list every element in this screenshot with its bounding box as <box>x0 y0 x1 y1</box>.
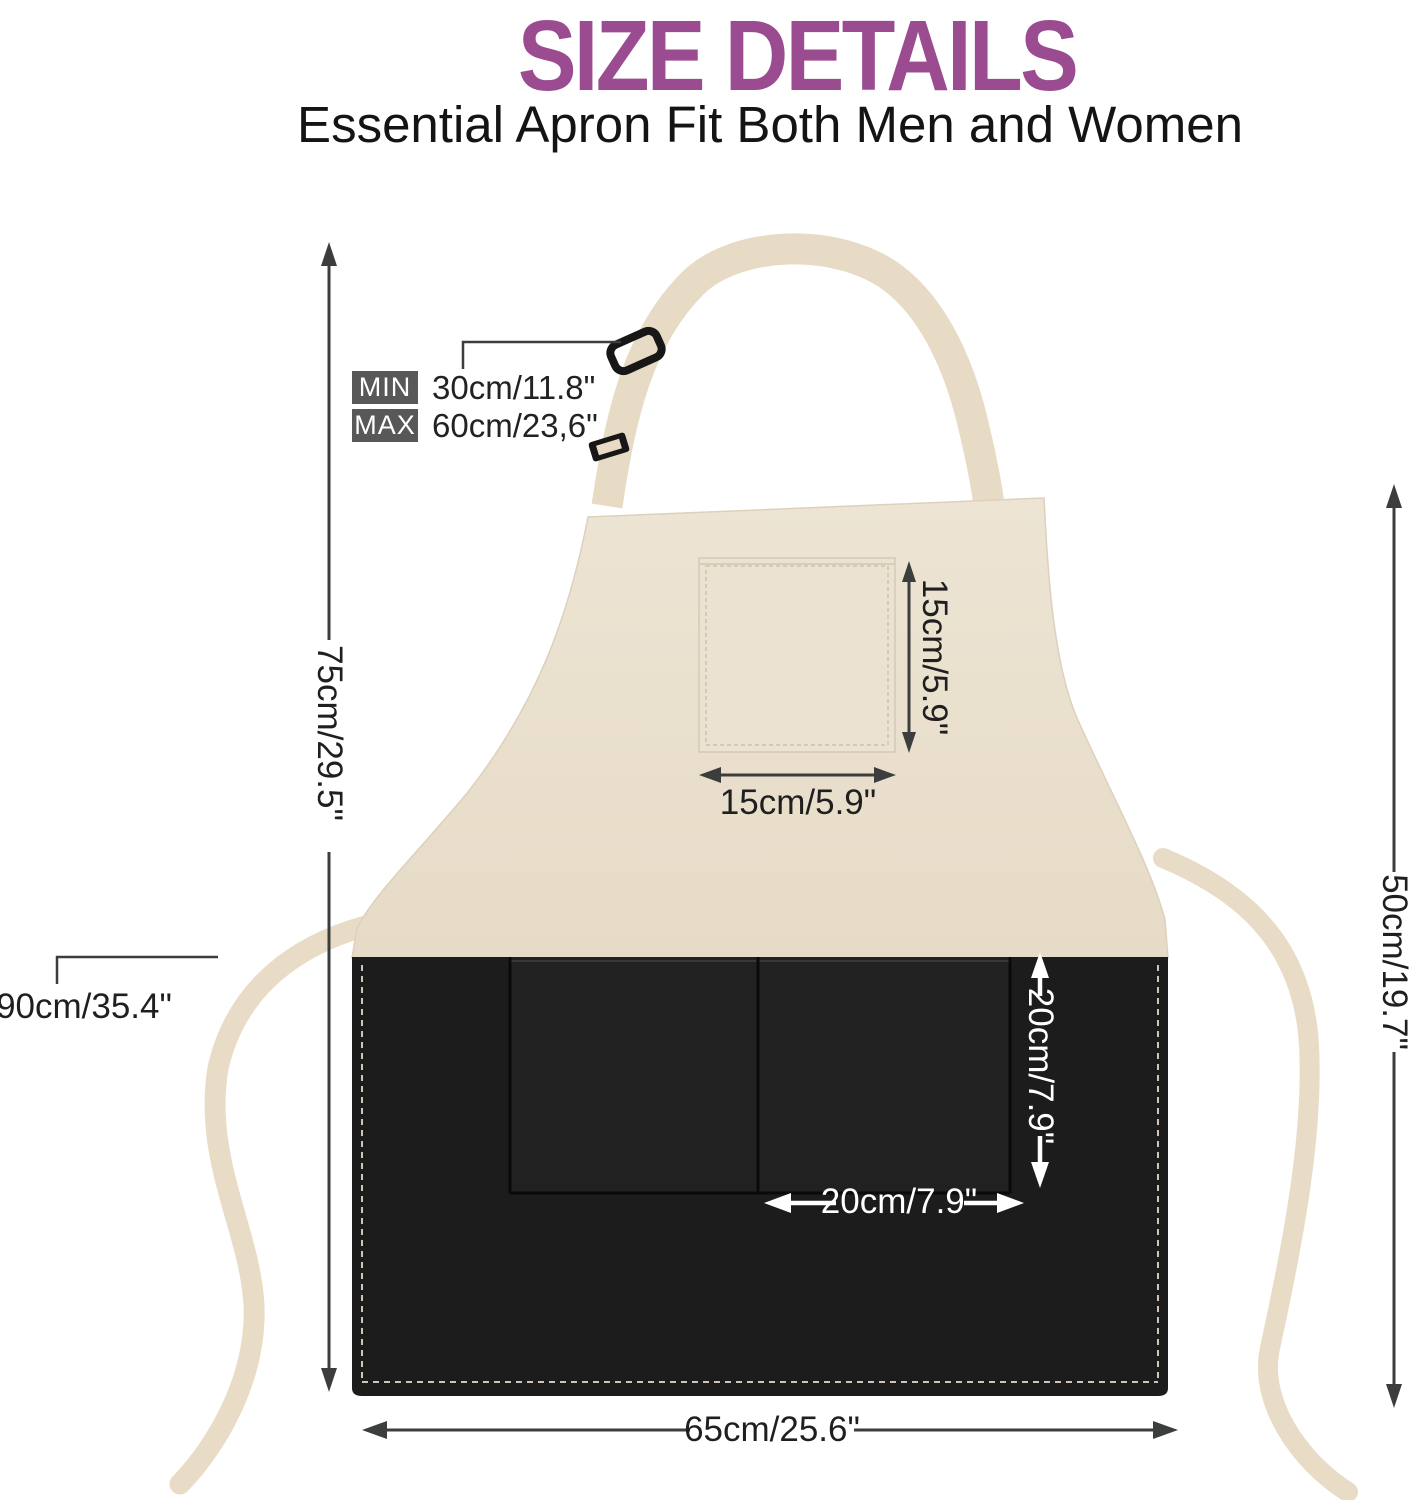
leader-waist-tie <box>57 957 218 984</box>
arrowhead-down-icon <box>1386 1384 1402 1408</box>
front-pocket-strip <box>510 957 1010 1193</box>
neck-strap-max-value: 60cm/23,6" <box>432 409 598 442</box>
chest-pocket-width-label: 15cm/5.9" <box>720 783 876 823</box>
arrowhead-right-icon <box>1153 1421 1178 1439</box>
arrowhead-left-icon <box>362 1421 387 1439</box>
right-waist-tie <box>1163 858 1348 1492</box>
arrowhead-down-icon <box>321 1368 337 1392</box>
size-details-infographic: SIZE DETAILS Essential Apron Fit Both Me… <box>0 0 1412 1500</box>
arrowhead-up-icon <box>1386 484 1402 508</box>
neck-strap-min-value: 30cm/11.8" <box>432 371 595 404</box>
chest-pocket <box>699 558 895 752</box>
leader-neck-strap <box>463 342 621 369</box>
left-waist-tie <box>180 926 366 1484</box>
chest-pocket-height-label: 15cm/5.9" <box>914 579 954 735</box>
front-pocket-width-label: 20cm/7.9" <box>821 1182 977 1222</box>
tie-length-label: 90cm/35.4" <box>0 987 172 1027</box>
bottom-width-label: 65cm/25.6" <box>684 1410 860 1450</box>
side-height-label: 50cm/19.7" <box>1374 874 1412 1050</box>
arrowhead-up-icon <box>321 242 337 266</box>
front-pocket-height-label: 20cm/7.9" <box>1020 988 1060 1144</box>
max-badge: MAX <box>352 409 418 442</box>
apron-diagram <box>0 0 1412 1500</box>
page-subtitle: Essential Apron Fit Both Men and Women <box>297 94 1243 156</box>
min-badge: MIN <box>352 371 418 404</box>
apron-length-label: 75cm/29.5" <box>309 645 349 821</box>
neck-strap <box>607 249 989 506</box>
